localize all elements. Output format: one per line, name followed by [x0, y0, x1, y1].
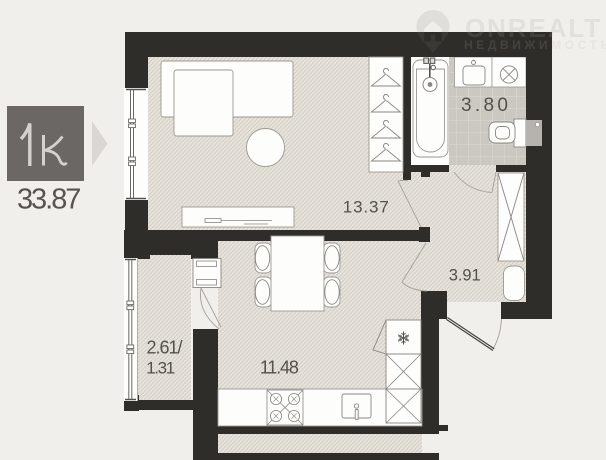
svg-text:1.31: 1.31 — [146, 359, 175, 378]
svg-text:3.91: 3.91 — [449, 267, 481, 285]
svg-text:33.87: 33.87 — [17, 184, 81, 216]
svg-text:13.37: 13.37 — [343, 198, 389, 217]
svg-text:2.61/: 2.61/ — [147, 337, 183, 357]
svg-text:3.80: 3.80 — [461, 95, 508, 116]
svg-text:11.48: 11.48 — [260, 357, 299, 377]
